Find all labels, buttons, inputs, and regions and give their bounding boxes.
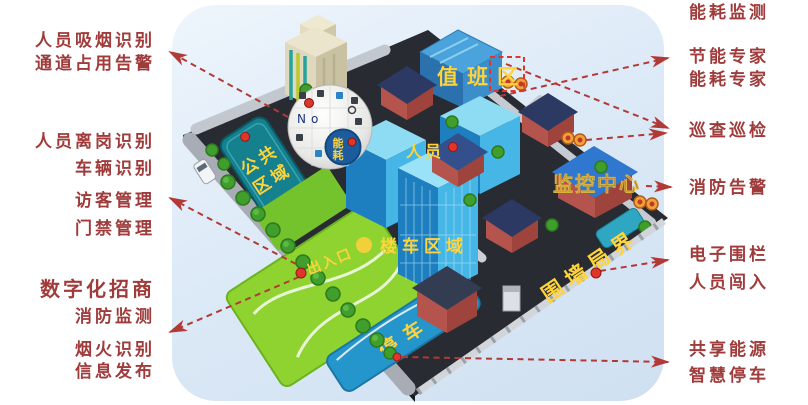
alarm-badge-icon — [562, 132, 574, 144]
alarm-badge-icon — [634, 196, 646, 208]
energy-label-2: 耗 — [333, 148, 344, 162]
label-electronic-fence: 电子围栏 — [689, 244, 769, 266]
alert-dot — [591, 268, 601, 278]
monitoring-center-label: 监控中心 — [553, 172, 641, 196]
label-smart-parking: 智慧停车 — [689, 365, 769, 387]
label-leave-post-recognition: 人员离岗识别 — [35, 131, 155, 153]
vehicle-area-label: 楼车区域 — [380, 236, 468, 257]
label-smoking-recognition: 人员吸烟识别 — [35, 30, 155, 52]
alert-dot — [348, 138, 356, 146]
personnel-label: 人员 — [406, 142, 444, 161]
label-energy-saving-expert: 节能专家 — [689, 46, 769, 68]
alert-dot — [305, 99, 314, 108]
label-fire-monitoring: 消防监测 — [75, 306, 155, 328]
label-vehicle-recognition: 车辆识别 — [75, 158, 155, 180]
alert-dot — [449, 143, 458, 152]
alert-dot — [393, 353, 401, 361]
alarm-badge-icon — [574, 134, 586, 146]
alert-dot — [296, 268, 306, 278]
vehicle-area-dot — [356, 237, 372, 253]
label-info-release: 信息发布 — [75, 361, 155, 383]
arrow-to-patrol-2 — [586, 133, 666, 140]
label-digital-investment: 数字化招商 — [40, 278, 155, 300]
duty-area-label: 值班区 — [437, 65, 527, 89]
label-personnel-intrusion: 人员闯入 — [689, 272, 769, 294]
label-fire-alarm: 消防告警 — [689, 177, 769, 199]
label-energy-expert: 能耗专家 — [689, 69, 769, 91]
label-visitor-management: 访客管理 — [75, 190, 155, 212]
alarm-badge-icon — [646, 198, 658, 210]
label-patrol-inspection: 巡查巡检 — [689, 120, 769, 142]
label-channel-occupancy: 通道占用告警 — [35, 53, 155, 75]
label-energy-monitoring: 能耗监测 — [689, 2, 769, 24]
label-access-control: 门禁管理 — [75, 218, 155, 240]
label-shared-energy: 共享能源 — [689, 339, 769, 361]
arrow-to-fire-alarm — [646, 186, 671, 187]
label-smoke-fire-recognition: 烟火识别 — [75, 339, 155, 361]
energy-label: 能 — [333, 136, 344, 150]
hub-sign-label: No — [297, 112, 323, 126]
smart-park-diagram: { "labels": { "left": [ {"text": "人员吸烟识别… — [0, 0, 808, 405]
energy-badge: 能 耗 — [326, 130, 361, 165]
